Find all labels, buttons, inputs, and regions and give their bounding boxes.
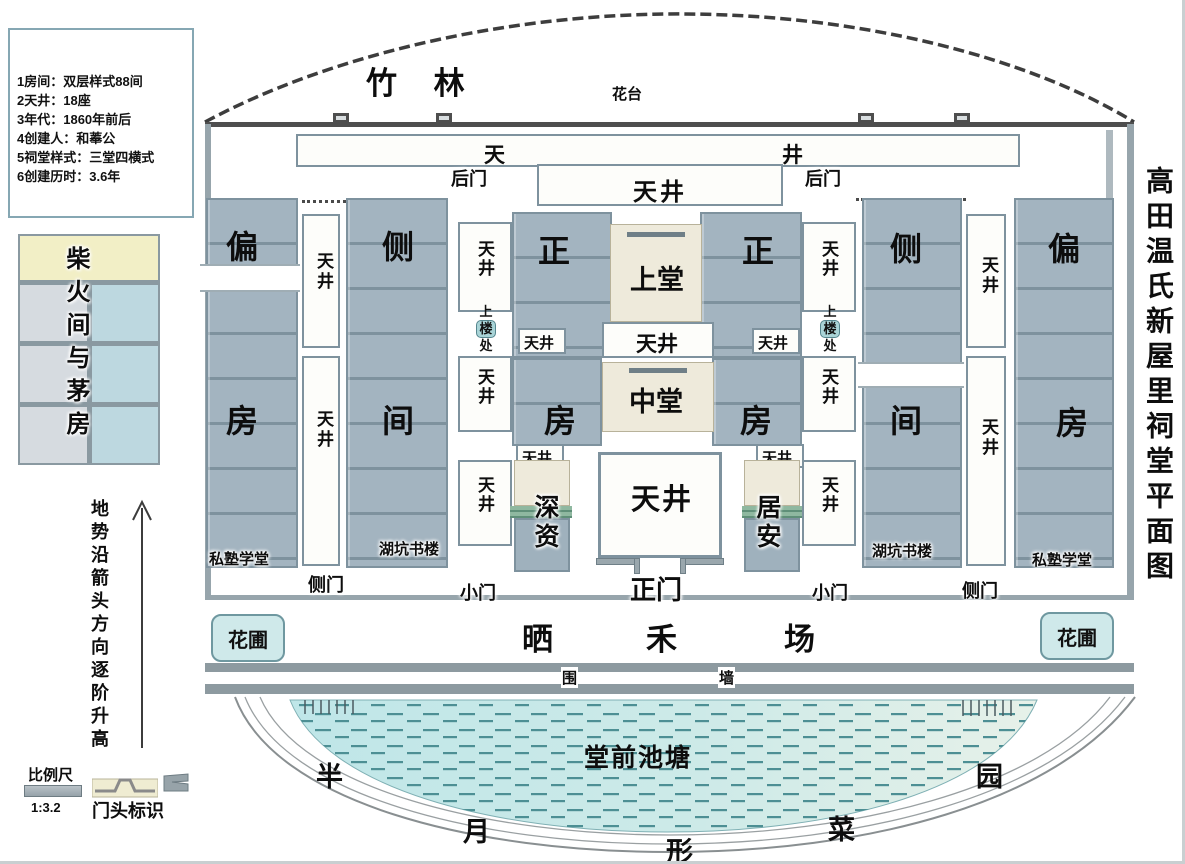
firewood-label: 柴火间与茅房 — [58, 246, 93, 461]
middle-hall-lintel — [629, 368, 687, 373]
juan-label: 居安 — [749, 494, 785, 552]
scale-value: 1:3.2 — [31, 800, 61, 815]
back-door-label-right: 后门 — [805, 165, 841, 191]
enclosure-wall-lower — [205, 684, 1134, 694]
firewood-cell — [92, 285, 159, 341]
small-courtyard-label: 天井 — [758, 332, 788, 353]
upper-courtyard-label: 天井 — [633, 172, 687, 207]
info-line: 4创建人：和菶公 — [17, 129, 188, 148]
info-box: 1房间：双层样式88间 2天井：18座 3年代：1860年前后 4创建人：和菶公… — [8, 28, 194, 218]
room-label-fang-mid-left: 房 — [544, 396, 576, 442]
room-label-fang-mid-right: 房 — [740, 396, 772, 442]
door-mark-label: 门头标识 — [92, 797, 164, 823]
crescent-char: 菜 — [828, 808, 855, 847]
room-label-jian-right: 间 — [890, 396, 922, 442]
inner-courtyard-label: 天井 — [472, 476, 497, 514]
room-label-pian-right: 偏 — [1048, 224, 1080, 270]
side-gate-label-right: 侧门 — [962, 577, 998, 603]
door-head-icon — [92, 775, 158, 799]
crescent-char: 半 — [316, 755, 343, 794]
room-label-zheng-left: 正 — [538, 226, 570, 272]
firewood-cell — [92, 407, 159, 463]
book-house-label-left: 湖坑书楼 — [379, 538, 439, 559]
upper-hall-label: 上堂 — [630, 258, 684, 297]
upstairs-char: 上 — [479, 304, 492, 320]
courtyard-strip-box — [966, 356, 1006, 566]
small-courtyard-label: 天井 — [524, 332, 554, 353]
info-line: 3年代：1860年前后 — [17, 110, 188, 129]
upstairs-char: 处 — [823, 338, 836, 354]
info-line: 5祠堂样式：三堂四横式 — [17, 148, 188, 167]
terrain-arrow-icon — [128, 496, 156, 751]
door-head-icon-alt — [162, 772, 190, 794]
school-label-right: 私塾学堂 — [1032, 549, 1092, 570]
inner-courtyard-label: 天井 — [816, 476, 841, 514]
school-label-left: 私塾学堂 — [209, 548, 269, 569]
shenzi-label: 深资 — [527, 494, 563, 552]
flower-bed-label: 花圃 — [1057, 622, 1097, 651]
side-gate-label-left: 侧门 — [308, 571, 344, 597]
terrain-note: 地势沿箭头方向逐阶升高 — [86, 499, 112, 754]
firewood-cell — [92, 346, 159, 402]
flower-bed-right: 花圃 — [1040, 612, 1114, 660]
courtyard-strip-label: 天井 — [311, 410, 336, 450]
main-gate-bar-right — [680, 558, 724, 565]
crescent-char: 月 — [463, 810, 490, 849]
info-line: 6创建历时：3.6年 — [17, 167, 188, 186]
flower-bed-label: 花圃 — [228, 624, 268, 653]
room-label-jian-left: 间 — [382, 396, 414, 442]
main-gate-label: 正门 — [630, 570, 682, 607]
room-label-fang-right-outer: 房 — [1056, 398, 1088, 444]
upper-hall-lintel — [627, 232, 685, 237]
wall-char-wei: 围 — [561, 667, 578, 688]
upstairs-char: 处 — [479, 338, 492, 354]
scale-bar — [24, 785, 82, 797]
room-label-ce-right: 侧 — [890, 224, 922, 270]
bamboo-forest-label: 竹 林 — [366, 58, 479, 103]
mid-courtyard-label: 天井 — [636, 328, 678, 358]
top-courtyard-tian: 天 — [484, 139, 505, 169]
courtyard-strip-box — [302, 356, 340, 566]
door-head-mark — [436, 113, 452, 123]
right-wall — [1127, 124, 1134, 600]
drying-yard-char: 禾 — [646, 614, 677, 659]
right-passage — [858, 362, 964, 388]
crescent-char: 园 — [976, 755, 1003, 794]
back-door-label-left: 后门 — [451, 165, 487, 191]
door-head-mark — [333, 113, 349, 123]
courtyard-strip-label: 天井 — [311, 252, 336, 292]
top-courtyard-jing: 井 — [782, 139, 803, 169]
floor-plan-page: 1房间：双层样式88间 2天井：18座 3年代：1860年前后 4创建人：和菶公… — [0, 0, 1185, 864]
bamboo-hill-arc — [196, 2, 1146, 130]
room-label-pian-left: 偏 — [226, 222, 258, 268]
inner-courtyard-label: 天井 — [816, 240, 841, 278]
courtyard-strip-label: 天井 — [976, 418, 1001, 458]
drying-yard-char: 晒 — [522, 614, 553, 659]
inner-courtyard-label: 天井 — [472, 368, 497, 406]
enclosure-wall-upper — [205, 663, 1134, 672]
pond-label: 堂前池塘 — [584, 738, 692, 774]
crescent-char: 形 — [666, 830, 693, 864]
left-passage — [200, 264, 300, 292]
flower-terrace-label: 花台 — [612, 83, 642, 104]
upstairs-char-chip: 楼 — [476, 320, 495, 338]
book-house-label-right: 湖坑书楼 — [872, 540, 932, 561]
scale-label: 比例尺 — [28, 764, 73, 785]
courtyard-strip-label: 天井 — [976, 256, 1001, 296]
small-gate-label-right: 小门 — [812, 579, 848, 605]
room-label-ce-left: 侧 — [382, 222, 414, 268]
inner-courtyard-label: 天井 — [472, 240, 497, 278]
flower-bed-left: 花圃 — [211, 614, 285, 662]
inner-courtyard-label: 天井 — [816, 368, 841, 406]
room-label-zheng-right: 正 — [742, 226, 774, 272]
page-title: 高田温氏新屋里祠堂平面图 — [1138, 166, 1178, 596]
upstairs-marker-right: 上 楼 处 — [810, 304, 850, 354]
small-gate-label-left: 小门 — [460, 579, 496, 605]
central-courtyard-label: 天井 — [631, 476, 693, 518]
info-line: 1房间：双层样式88间 — [17, 72, 188, 91]
middle-hall-label: 中堂 — [629, 380, 683, 419]
upstairs-char: 上 — [823, 304, 836, 320]
upstairs-marker-left: 上 楼 处 — [466, 304, 506, 354]
room-label-fang-left-outer: 房 — [226, 396, 258, 442]
door-head-mark — [954, 113, 970, 123]
info-line: 2天井：18座 — [17, 91, 188, 110]
door-head-mark — [858, 113, 874, 123]
drying-yard-char: 场 — [784, 614, 815, 659]
top-courtyard-strip — [296, 134, 1020, 167]
upstairs-char-chip: 楼 — [820, 320, 839, 338]
wall-char-qiang: 墙 — [718, 667, 735, 688]
